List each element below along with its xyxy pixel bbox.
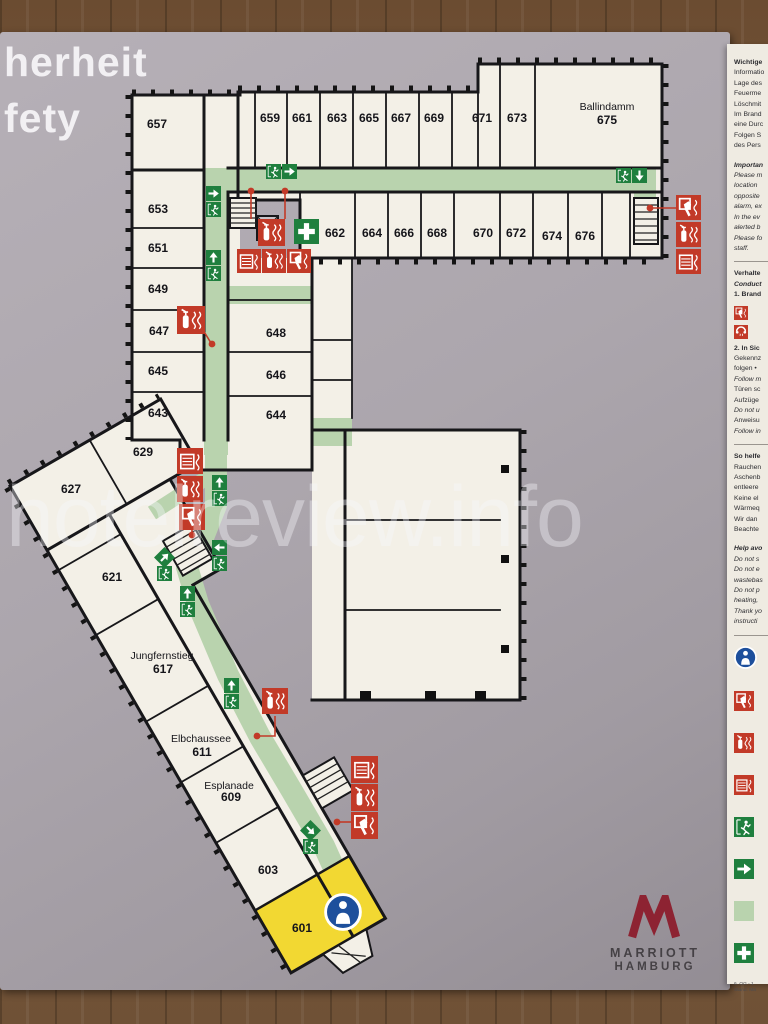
sidebar-line: Aufzüge: [734, 396, 768, 406]
divider: [734, 261, 768, 262]
sidebar-line: heating,: [734, 596, 768, 606]
escape-arrow-icon: [212, 540, 227, 555]
room-label-665: 665: [359, 111, 379, 125]
room-label-664: 664: [362, 226, 382, 240]
room-label-653: 653: [148, 202, 168, 216]
room-label-611: 611: [192, 745, 212, 759]
legend: [734, 646, 768, 968]
sidebar-line: Importan: [734, 161, 768, 171]
room-label-676: 676: [575, 229, 595, 243]
escape-arrow-icon: [180, 586, 195, 601]
legend-item: [734, 733, 768, 758]
fire-alarm-button-icon: [287, 249, 311, 273]
telephone-icon: [734, 325, 748, 339]
room-label-663: 663: [327, 111, 347, 125]
sidebar-line: So helfe: [734, 452, 768, 462]
sidebar-line: 2. In Sic: [734, 344, 768, 354]
room-label-674: 674: [542, 229, 562, 243]
sidebar-line: entleere: [734, 483, 768, 493]
sidebar-line: location: [734, 181, 768, 191]
fire-extinguisher-icon: [262, 688, 288, 714]
room-label-603: 603: [258, 863, 278, 877]
sidebar-line: Löschmit: [734, 100, 768, 110]
footnote: 6. OG - 1Stand: Mä: [734, 982, 768, 994]
sidebar-line: alerted b: [734, 223, 768, 233]
sidebar-line: Wichtige: [734, 58, 768, 68]
room-label-672: 672: [506, 226, 526, 240]
emergency-exit-icon: [157, 566, 172, 581]
you-are-here-icon: [734, 646, 757, 669]
room-label-659: 659: [260, 111, 280, 125]
room-label-643: 643: [148, 406, 168, 420]
room-label-673: 673: [507, 111, 527, 125]
room-label-649: 649: [148, 282, 168, 296]
fire-extinguisher-icon: [734, 733, 754, 753]
room-label-646: 646: [266, 368, 286, 382]
sidebar-line: Do not s: [734, 555, 768, 565]
room-label-675: 675: [597, 113, 617, 127]
fire-extinguisher-icon: [177, 476, 203, 502]
escape-arrow-icon: [632, 168, 647, 183]
sidebar-line: Informatio: [734, 68, 768, 78]
room-label-644: 644: [266, 408, 286, 422]
emergency-exit-icon: [303, 839, 318, 854]
sidebar-line: Wärmeq: [734, 504, 768, 514]
legend-item: [734, 817, 768, 842]
sidebar-line: alarm, ex: [734, 202, 768, 212]
fire-alarm-button-icon: [734, 306, 748, 320]
brand-city: HAMBURG: [585, 961, 725, 973]
instructions-panel: WichtigeInformatioLage desFeuermeLöschmi…: [727, 44, 768, 984]
sidebar-line: Rauchen: [734, 463, 768, 473]
alarm-point-dot: [254, 733, 261, 740]
wall-hydrant-icon: [676, 249, 701, 274]
room-label-647: 647: [149, 324, 169, 338]
sidebar-line: Conduct: [734, 280, 768, 290]
emergency-exit-icon: [212, 491, 227, 506]
escape-arrow-icon: [206, 250, 221, 265]
first-aid-icon: [294, 219, 319, 244]
alarm-point-dot: [282, 188, 289, 195]
sidebar-line: Folgen S: [734, 131, 768, 141]
sidebar-line: Do not u: [734, 406, 768, 416]
sidebar-line: In the ev: [734, 213, 768, 223]
sidebar-line: Please fo: [734, 234, 768, 244]
emergency-exit-icon: [616, 168, 631, 183]
alarm-point-dot: [248, 188, 255, 195]
legend-item: [734, 646, 768, 674]
wall-hydrant-icon: [177, 448, 203, 474]
fire-extinguisher-icon: [676, 222, 701, 247]
street-label: Elbchaussee: [171, 733, 231, 745]
escape-arrow-icon: [282, 164, 297, 179]
room-label-669: 669: [424, 111, 444, 125]
sidebar-line: Wir dan: [734, 515, 768, 525]
legend-item: [734, 901, 768, 926]
brand-name: MARRIOTT: [585, 946, 725, 960]
room-label-621: 621: [102, 570, 122, 584]
fire-alarm-button-icon: [676, 195, 701, 220]
escape-arrow-icon: [206, 186, 221, 201]
street-label: Ballindamm: [580, 101, 635, 113]
sidebar-line: Aschenb: [734, 473, 768, 483]
legend-item: [734, 859, 768, 884]
sidebar-line: Thank yo: [734, 607, 768, 617]
sidebar-line: instructi: [734, 617, 768, 627]
room-label-662: 662: [325, 226, 345, 240]
divider: [734, 444, 768, 445]
divider: [734, 635, 768, 636]
sidebar-line: Please m: [734, 171, 768, 181]
instruction-icons: [734, 306, 768, 339]
fire-extinguisher-icon: [262, 249, 286, 273]
wall-hydrant-icon: [351, 756, 378, 783]
escape-arrow-icon: [734, 859, 754, 879]
legend-item: [734, 775, 768, 800]
sidebar-line: staff.: [734, 244, 768, 254]
sidebar-line: eine Durc: [734, 120, 768, 130]
legend-item: [734, 943, 768, 968]
fire-extinguisher-icon: [177, 306, 205, 334]
fire-alarm-button-icon: [734, 691, 754, 711]
marriott-logo-block: MARRIOTT HAMBURG: [585, 895, 725, 973]
fire-extinguisher-icon: [351, 784, 378, 811]
wall-hydrant-icon: [734, 775, 754, 795]
sidebar-line: Follow m: [734, 375, 768, 385]
room-label-666: 666: [394, 226, 414, 240]
room-label-661: 661: [292, 111, 312, 125]
alarm-point-dot: [189, 532, 196, 539]
room-label-657: 657: [147, 117, 167, 131]
emergency-exit-icon: [212, 556, 227, 571]
sidebar-line: Keine el: [734, 494, 768, 504]
fire-alarm-button-icon: [179, 504, 205, 530]
room-label-648: 648: [266, 326, 286, 340]
you-are-here-icon: [326, 895, 361, 930]
sidebar-line: Feuerme: [734, 89, 768, 99]
room-label-617: 617: [153, 662, 173, 676]
room-label-670: 670: [473, 226, 493, 240]
alarm-point-dot: [334, 819, 341, 826]
sidebar-line: Verhalte: [734, 269, 768, 279]
escape-arrow-icon: [212, 475, 227, 490]
sidebar-line: Do not e: [734, 565, 768, 575]
room-label-601: 601: [292, 921, 312, 935]
emergency-exit-icon: [734, 817, 754, 837]
sidebar-line: 1. Brand: [734, 290, 768, 300]
sidebar-line: wastebas: [734, 576, 768, 586]
sidebar-line: Anweisu: [734, 416, 768, 426]
room-label-651: 651: [148, 241, 168, 255]
sidebar-line: des Pers: [734, 141, 768, 151]
sidebar-line: Im Brand: [734, 110, 768, 120]
legend-item: [734, 691, 768, 716]
emergency-exit-icon: [206, 202, 221, 217]
alarm-point-dot: [209, 341, 216, 348]
emergency-exit-icon: [266, 164, 281, 179]
room-label-671: 671: [472, 111, 492, 125]
emergency-exit-icon: [224, 694, 239, 709]
street-label: Jungfernstieg: [130, 650, 193, 662]
escape-arrow-icon: [224, 678, 239, 693]
fire-extinguisher-icon: [258, 219, 285, 246]
emergency-exit-icon: [206, 266, 221, 281]
floor-plan: 6576536516496476456436486466446596616636…: [0, 0, 768, 1024]
hall-footprint: [312, 430, 520, 700]
alarm-point-dot: [647, 205, 654, 212]
photo-stage: herheit fety: [0, 0, 768, 1024]
marriott-m-icon: [627, 895, 683, 939]
room-label-645: 645: [148, 364, 168, 378]
street-label: Esplanade: [204, 780, 254, 792]
escape-route-icon: [734, 901, 754, 921]
room-label-668: 668: [427, 226, 447, 240]
mid-strip-footprint: [312, 258, 352, 430]
sidebar-line: Türen sc: [734, 385, 768, 395]
sidebar-line: Do not p: [734, 586, 768, 596]
room-label-629: 629: [133, 445, 153, 459]
sidebar-line: Beachte: [734, 525, 768, 535]
sidebar-line: Gekennz: [734, 354, 768, 364]
first-aid-icon: [734, 943, 754, 963]
fire-alarm-button-icon: [351, 812, 378, 839]
wall-hydrant-icon: [237, 249, 261, 273]
sidebar-line: Help avo: [734, 544, 768, 554]
sidebar-line: Lage des: [734, 79, 768, 89]
sidebar-line: opposite: [734, 192, 768, 202]
sidebar-line: folgen •: [734, 364, 768, 374]
room-label-609: 609: [221, 790, 241, 804]
room-label-667: 667: [391, 111, 411, 125]
emergency-exit-icon: [180, 602, 195, 617]
sidebar-line: Follow in: [734, 427, 768, 437]
room-label-627: 627: [61, 482, 81, 496]
